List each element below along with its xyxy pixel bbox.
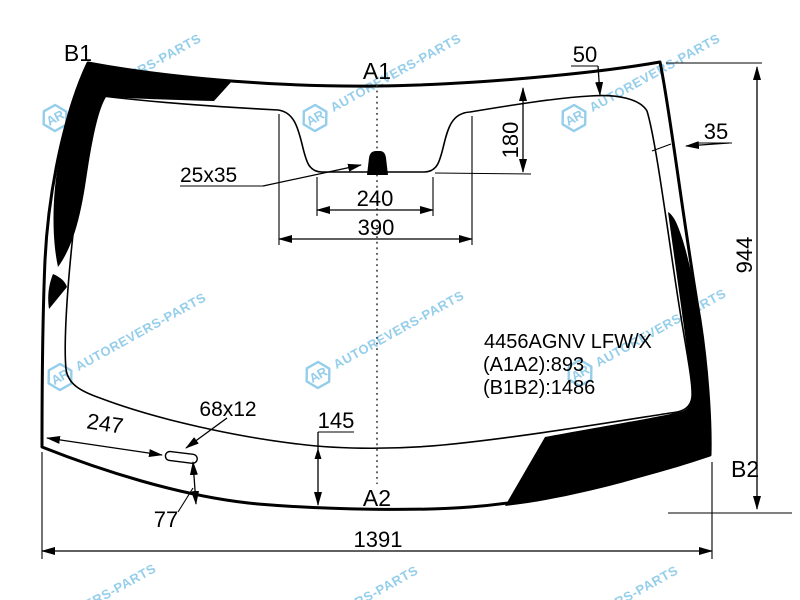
dim-247-line <box>47 438 162 455</box>
label-a1: A1 <box>363 58 391 84</box>
watermark: AUTOREVERS-PARTS <box>515 560 683 600</box>
watermark-text: AUTOREVERS-PARTS <box>593 285 729 369</box>
dim-35-label: 35 <box>704 119 728 144</box>
dim-sensor-label: 25x35 <box>180 164 237 187</box>
label-b2: B2 <box>731 456 759 482</box>
dim-180-label: 180 <box>498 122 523 159</box>
watermark: AUTOREVERS-PARTS <box>255 560 423 600</box>
watermark-text: AUTOREVERS-PARTS <box>23 560 159 600</box>
dim-pad-label: 68x12 <box>199 398 256 421</box>
rain-sensor-block <box>367 151 388 175</box>
watermark-layer: AR AUTOREVERS-PARTS AR AUTOREVERS-PARTS … <box>0 28 731 600</box>
watermark: AUTOREVERS-PARTS <box>0 558 161 600</box>
left-frit-sliver <box>48 274 67 309</box>
dim-390-label: 390 <box>358 215 395 240</box>
mirror-mount-pad <box>165 451 198 464</box>
dim-145-up-arrow <box>315 448 322 459</box>
windshield-drawing: AR AUTOREVERS-PARTS AR AUTOREVERS-PARTS … <box>0 0 800 600</box>
dim-50-label: 50 <box>573 42 597 67</box>
drawing-canvas: AR AUTOREVERS-PARTS AR AUTOREVERS-PARTS … <box>0 0 800 600</box>
watermark: AR AUTOREVERS-PARTS <box>301 285 469 392</box>
part-dim-a1a2: (A1A2):893 <box>483 354 584 376</box>
dim-240-label: 240 <box>357 186 394 211</box>
watermark-text: AUTOREVERS-PARTS <box>73 289 209 373</box>
dim-1391-label: 1391 <box>354 527 403 552</box>
dim-77-label: 77 <box>154 507 178 532</box>
label-b1: B1 <box>64 40 92 66</box>
watermark-text: AUTOREVERS-PARTS <box>285 562 421 600</box>
dim-944-label: 944 <box>732 237 757 274</box>
watermark-text: AUTOREVERS-PARTS <box>587 30 723 114</box>
watermark-text: AUTOREVERS-PARTS <box>331 287 467 371</box>
label-a2: A2 <box>363 485 391 511</box>
dim-180-ext <box>435 173 531 174</box>
dim-247-label: 247 <box>85 409 125 439</box>
watermark-text: AUTOREVERS-PARTS <box>328 30 464 114</box>
dim-77-line <box>193 462 196 504</box>
dim-145-label: 145 <box>318 408 355 433</box>
dim-pad-leader <box>186 418 227 448</box>
part-number: 4456AGNV LFW/X <box>484 331 652 353</box>
watermark-text: AUTOREVERS-PARTS <box>545 562 681 600</box>
ceramic-band-inner-line <box>65 96 692 449</box>
part-dim-b1b2: (B1B2):1486 <box>483 377 595 399</box>
